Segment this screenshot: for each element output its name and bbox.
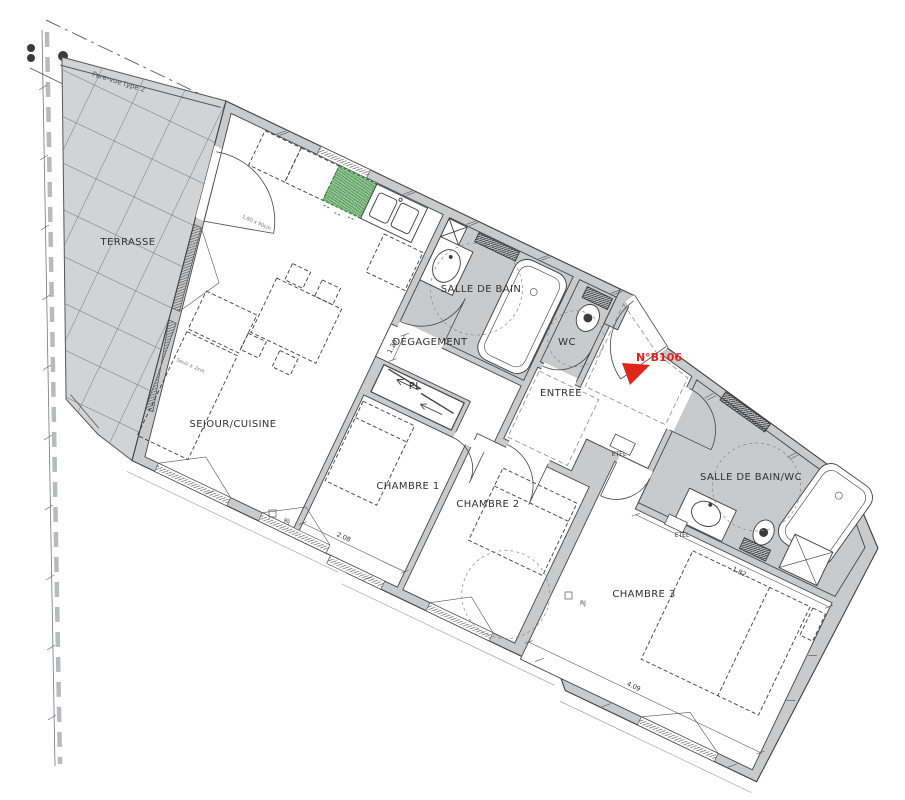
label-degagement: DEGAGEMENT <box>392 337 468 348</box>
label-sejour: SEJOUR/CUISINE <box>189 419 276 430</box>
label-chambre2: CHAMBRE 2 <box>456 499 519 510</box>
survey-point <box>27 54 35 62</box>
label-rj-2: RJ <box>580 600 586 607</box>
label-salle-de-bain: SALLE DE BAIN <box>441 284 522 295</box>
unit-number-label: N°B106 <box>636 351 682 364</box>
label-chambre1: CHAMBRE 1 <box>376 481 439 492</box>
label-wc: WC <box>558 337 576 348</box>
floor-plan-page: { "plan": { "unit_label": "N°B106", "roo… <box>0 0 905 800</box>
survey-ticks <box>39 85 56 720</box>
label-etel-1: ETEL <box>612 451 627 458</box>
boundary-band <box>47 32 60 764</box>
survey-point <box>27 44 35 52</box>
label-salle-de-bain-wc: SALLE DE BAIN/WC <box>700 472 802 483</box>
label-pl: PL <box>409 381 421 392</box>
apartment-geometry: 2.08 4.09 1.82 1.20 <box>0 28 905 796</box>
label-terrasse: TERRASSE <box>100 237 156 248</box>
label-chambre3: CHAMBRE 3 <box>612 589 675 600</box>
label-rj-1: RJ <box>284 518 290 525</box>
label-entree: ENTREE <box>540 388 582 399</box>
floor-plan-drawing: 2.08 4.09 1.82 1.20 TERRASSE SEJOUR/CUIS… <box>0 0 905 800</box>
label-etel-2: ETEL <box>675 532 690 539</box>
